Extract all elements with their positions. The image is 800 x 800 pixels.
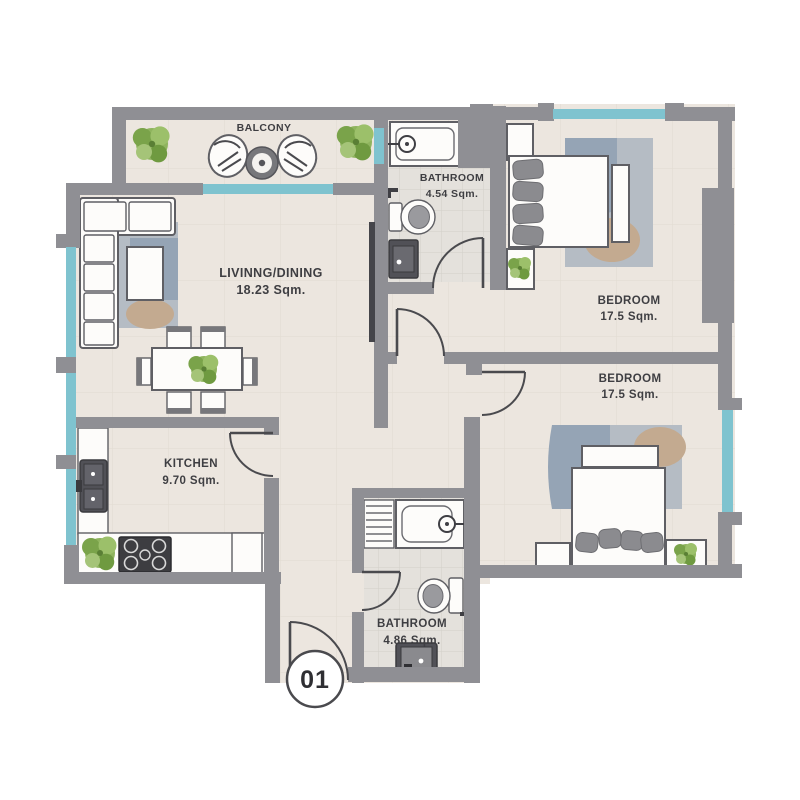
window-living-1	[66, 247, 76, 357]
bathroom-top-area: 4.54 Sqm.	[426, 188, 479, 200]
plant-icon	[674, 543, 697, 566]
unit-badge: 01	[287, 651, 343, 707]
toilet-icon	[389, 200, 435, 234]
plant-icon	[508, 257, 531, 280]
balcony-label: BALCONY	[237, 122, 292, 134]
bedroom-top-area: 17.5 Sqm.	[600, 311, 657, 323]
window-kitchen	[66, 469, 76, 545]
washbasin-cabinet-icon	[389, 240, 418, 278]
bedroom-top-furniture	[507, 124, 653, 289]
coffee-table	[127, 247, 163, 300]
nightstand	[536, 543, 570, 568]
pocket-door-panel	[369, 222, 375, 342]
living-dining-label: LIVINNG/DINING	[219, 266, 323, 280]
window-bathroom-top	[374, 128, 384, 164]
bathtub-icon	[396, 500, 464, 548]
floor-plan: BALCONY LIVINNG/DINING 18.23 Sqm. BATHRO…	[0, 0, 800, 800]
window-bedroom-bottom	[722, 410, 733, 512]
bedroom-top-label: BEDROOM	[598, 295, 661, 307]
shower-icon	[388, 122, 460, 166]
bedroom-bench	[612, 165, 629, 242]
bathroom-bottom-label: BATHROOM	[377, 618, 447, 630]
towel-rack-icon	[364, 500, 394, 548]
plant-icon	[188, 355, 218, 384]
bedroom-bottom-furniture	[536, 425, 706, 568]
bathroom-top-label: BATHROOM	[420, 172, 484, 184]
window-bedroom-top	[553, 109, 665, 119]
plant-icon	[82, 537, 117, 571]
bed	[572, 468, 665, 568]
kitchen-label: KITCHEN	[164, 458, 218, 470]
living-dining-area: 18.23 Sqm.	[236, 283, 305, 297]
bathroom-bottom-area: 4.86 Sqm.	[383, 635, 440, 647]
plant-icon	[133, 126, 170, 162]
stove	[119, 537, 171, 572]
unit-number: 01	[300, 666, 330, 694]
window-balcony-living	[203, 184, 333, 194]
kitchen-cabinet	[232, 533, 262, 573]
bedroom-console	[582, 446, 658, 467]
plant-icon	[337, 124, 374, 160]
nightstand	[507, 124, 533, 160]
balcony-table-icon	[246, 147, 278, 179]
living-rug-tan	[126, 299, 174, 329]
toilet-icon	[418, 578, 463, 613]
window-living-2	[66, 373, 76, 455]
bedroom-bottom-area: 17.5 Sqm.	[601, 389, 658, 401]
bedroom-bottom-label: BEDROOM	[599, 373, 662, 385]
kitchen-area: 9.70 Sqm.	[162, 475, 219, 487]
